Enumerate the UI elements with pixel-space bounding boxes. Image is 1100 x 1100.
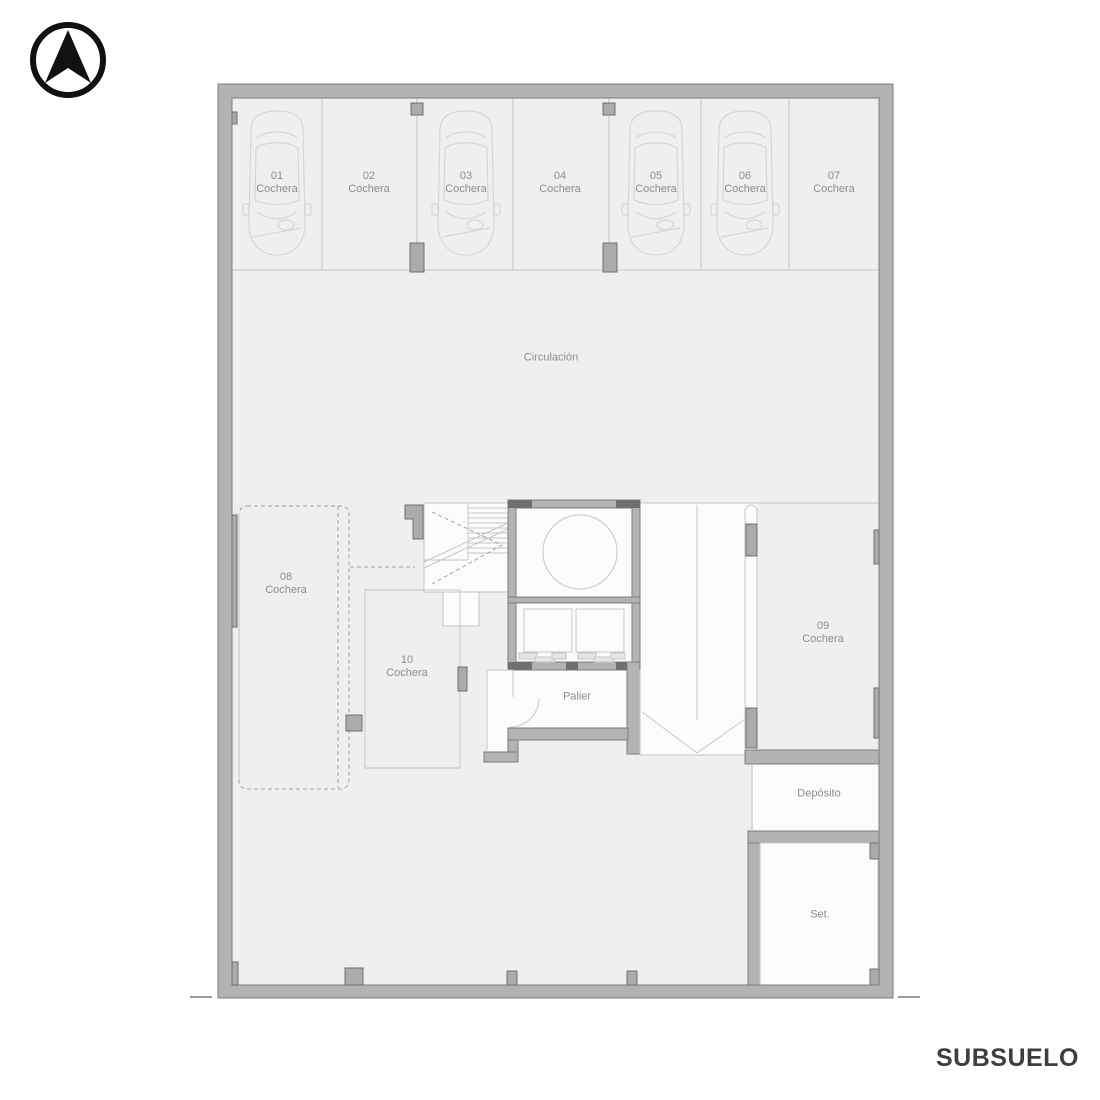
label-cochera-04: 04Cochera bbox=[539, 170, 581, 196]
label-circulacion: Circulación bbox=[524, 352, 578, 365]
floor-plan bbox=[0, 0, 1100, 1100]
label-cochera-06: 06Cochera bbox=[724, 170, 766, 196]
floorplan-page: 01Cochera 02Cochera 03Cochera 04Cochera … bbox=[0, 0, 1100, 1100]
floor-title: SUBSUELO bbox=[936, 1044, 1079, 1073]
label-cochera-03: 03Cochera bbox=[445, 170, 487, 196]
label-cochera-05: 05Cochera bbox=[635, 170, 677, 196]
label-cochera-10: 10Cochera bbox=[386, 654, 428, 680]
label-deposito: Depósito bbox=[797, 788, 840, 801]
label-cochera-08: 08Cochera bbox=[265, 571, 307, 597]
label-cochera-02: 02Cochera bbox=[348, 170, 390, 196]
label-cochera-09: 09Cochera bbox=[802, 620, 844, 646]
label-cochera-01: 01Cochera bbox=[256, 170, 298, 196]
label-set: Set. bbox=[810, 909, 830, 922]
label-palier: Palier bbox=[563, 691, 591, 704]
label-cochera-07: 07Cochera bbox=[813, 170, 855, 196]
